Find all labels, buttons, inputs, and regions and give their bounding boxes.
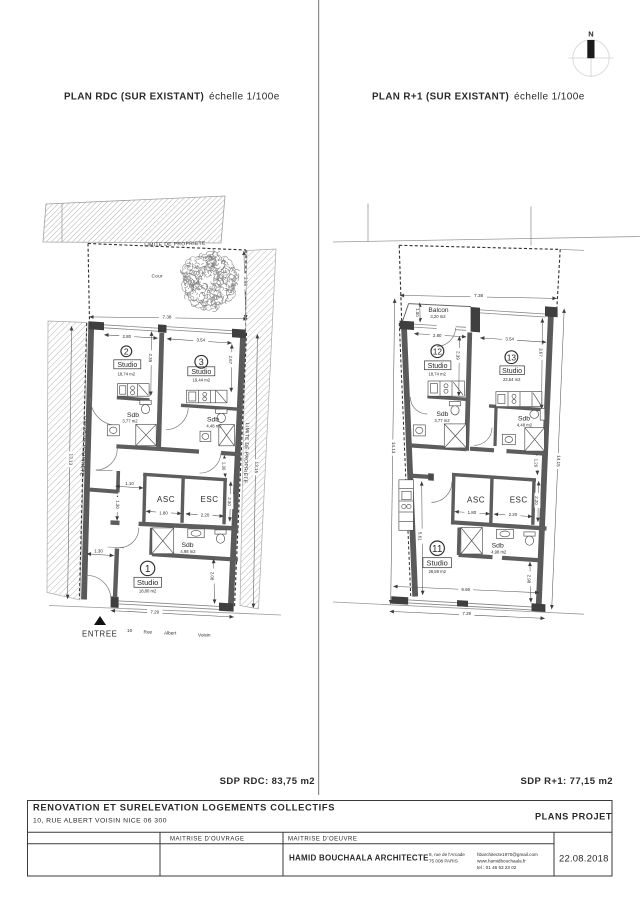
svg-text:hbarchitecte1970@gmail.com: hbarchitecte1970@gmail.com	[477, 852, 538, 857]
svg-text:2.39: 2.39	[148, 354, 153, 363]
svg-text:tel : 01 46 63 23 02: tel : 01 46 63 23 02	[477, 865, 517, 870]
svg-text:MAITRISE D'OEUVRE: MAITRISE D'OEUVRE	[288, 837, 357, 843]
svg-text:Studio: Studio	[191, 369, 211, 376]
svg-text:7.38: 7.38	[163, 314, 172, 319]
svg-text:4,48 m2: 4,48 m2	[206, 423, 222, 428]
svg-text:Studio: Studio	[502, 368, 522, 375]
svg-text:2.20: 2.20	[534, 496, 539, 505]
svg-text:Studio: Studio	[427, 559, 448, 568]
svg-text:3,20 m2: 3,20 m2	[430, 314, 446, 319]
svg-text:SDP RDC: 83,75 m2: SDP RDC: 83,75 m2	[220, 776, 315, 787]
svg-text:13,15: 13,15	[254, 462, 259, 474]
svg-text:3.67: 3.67	[538, 348, 543, 357]
svg-text:10, RUE ALBERT VOISIN NICE 06: 10, RUE ALBERT VOISIN NICE 06 300	[33, 818, 167, 825]
svg-text:2.08: 2.08	[210, 572, 215, 581]
svg-text:PLAN RDC (SUR EXISTANT): PLAN RDC (SUR EXISTANT)	[64, 92, 204, 103]
svg-text:RENOVATION ET SURELEVATION LOG: RENOVATION ET SURELEVATION LOGEMENTS COL…	[33, 803, 335, 813]
svg-text:7.29: 7.29	[151, 609, 160, 614]
svg-text:4,98 m2: 4,98 m2	[491, 549, 507, 554]
svg-text:1.20: 1.20	[533, 459, 538, 468]
svg-text:ENTREE: ENTREE	[82, 630, 118, 639]
svg-text:Sdb: Sdb	[518, 415, 530, 422]
svg-text:3,77 m2: 3,77 m2	[434, 418, 450, 423]
svg-text:N: N	[588, 30, 593, 39]
svg-text:2.67: 2.67	[228, 356, 233, 365]
svg-text:ESC: ESC	[201, 495, 219, 504]
svg-text:18,80 m2: 18,80 m2	[139, 588, 157, 593]
svg-text:Sdb: Sdb	[492, 542, 504, 549]
svg-text:1.30: 1.30	[94, 548, 103, 553]
svg-text:HAMID BOUCHAALA ARCHITECTE: HAMID BOUCHAALA ARCHITECTE	[289, 854, 429, 863]
svg-text:ESC: ESC	[510, 495, 528, 504]
svg-text:7.38: 7.38	[474, 293, 483, 298]
svg-text:3.54: 3.54	[505, 337, 514, 342]
svg-text:4,48 m2: 4,48 m2	[517, 423, 533, 428]
svg-text:2.98: 2.98	[526, 575, 531, 584]
svg-text:PLAN R+1 (SUR EXISTANT): PLAN R+1 (SUR EXISTANT)	[372, 92, 509, 103]
svg-text:1.30: 1.30	[221, 462, 226, 471]
svg-text:MAITRISE D'OUVRAGE: MAITRISE D'OUVRAGE	[170, 837, 245, 843]
svg-text:2.80: 2.80	[123, 334, 132, 339]
svg-text:ASC: ASC	[157, 495, 175, 504]
svg-text:14,15: 14,15	[556, 455, 561, 467]
svg-text:1.00: 1.00	[415, 308, 420, 317]
svg-text:1.80: 1.80	[159, 511, 168, 516]
svg-text:11: 11	[432, 544, 443, 555]
svg-text:3,77 m2: 3,77 m2	[122, 418, 138, 423]
svg-text:28,59 m2: 28,59 m2	[428, 569, 446, 574]
svg-text:1.80: 1.80	[468, 510, 477, 515]
svg-text:2.20: 2.20	[201, 513, 210, 518]
svg-text:75 008 PARIS: 75 008 PARIS	[429, 859, 458, 864]
svg-text:1.30: 1.30	[115, 500, 120, 509]
svg-text:7.29: 7.29	[462, 611, 471, 616]
svg-text:PLANS PROJET: PLANS PROJET	[535, 812, 612, 822]
svg-text:Studio: Studio	[117, 362, 137, 369]
svg-text:9.69: 9.69	[461, 587, 470, 592]
svg-text:13,13: 13,13	[68, 454, 73, 466]
svg-text:2.39: 2.39	[455, 351, 460, 360]
svg-text:Cour: Cour	[152, 274, 163, 279]
svg-text:13: 13	[507, 353, 517, 363]
svg-text:23,54 m2: 23,54 m2	[503, 377, 521, 382]
svg-text:3: 3	[199, 357, 204, 367]
svg-text:14.13: 14.13	[391, 442, 396, 454]
svg-text:2.30: 2.30	[227, 497, 232, 506]
svg-text:2: 2	[124, 347, 129, 357]
svg-text:Balcon: Balcon	[428, 307, 448, 314]
svg-text:Rue: Rue	[144, 629, 153, 634]
svg-text:échelle 1/100e: échelle 1/100e	[514, 92, 585, 103]
svg-text:Voisin: Voisin	[198, 633, 211, 638]
svg-text:10: 10	[127, 628, 133, 633]
svg-text:5.61: 5.61	[417, 532, 422, 541]
svg-text:Albert: Albert	[164, 631, 177, 636]
svg-text:Studio: Studio	[137, 578, 158, 587]
svg-text:LIMITE DE PROPRIETE: LIMITE DE PROPRIETE	[144, 241, 206, 249]
svg-text:ASC: ASC	[467, 495, 485, 504]
svg-text:4,98 m2: 4,98 m2	[180, 549, 196, 554]
svg-text:12: 12	[433, 347, 443, 357]
svg-text:8, rue de l'Arcade: 8, rue de l'Arcade	[429, 852, 465, 857]
svg-text:2.20: 2.20	[509, 512, 518, 517]
svg-text:18,74 m2: 18,74 m2	[118, 371, 136, 376]
svg-text:échelle 1/100e: échelle 1/100e	[209, 92, 280, 103]
svg-text:Sdb: Sdb	[181, 542, 193, 549]
svg-text:19,44 m2: 19,44 m2	[193, 377, 211, 382]
svg-text:SDP R+1: 77,15 m2: SDP R+1: 77,15 m2	[521, 776, 613, 787]
svg-text:2.80: 2.80	[433, 333, 442, 338]
svg-text:3.54: 3.54	[197, 338, 206, 343]
svg-text:1.10: 1.10	[125, 481, 134, 486]
svg-text:www.hamidbouchaala.fr: www.hamidbouchaala.fr	[477, 859, 526, 864]
svg-text:18,74 m2: 18,74 m2	[428, 372, 446, 377]
svg-text:22.08.2018: 22.08.2018	[559, 854, 609, 865]
svg-text:1: 1	[145, 564, 151, 575]
svg-text:LIMITE DE PROPRIETE: LIMITE DE PROPRIETE	[242, 423, 250, 484]
svg-text:Studio: Studio	[428, 363, 448, 370]
